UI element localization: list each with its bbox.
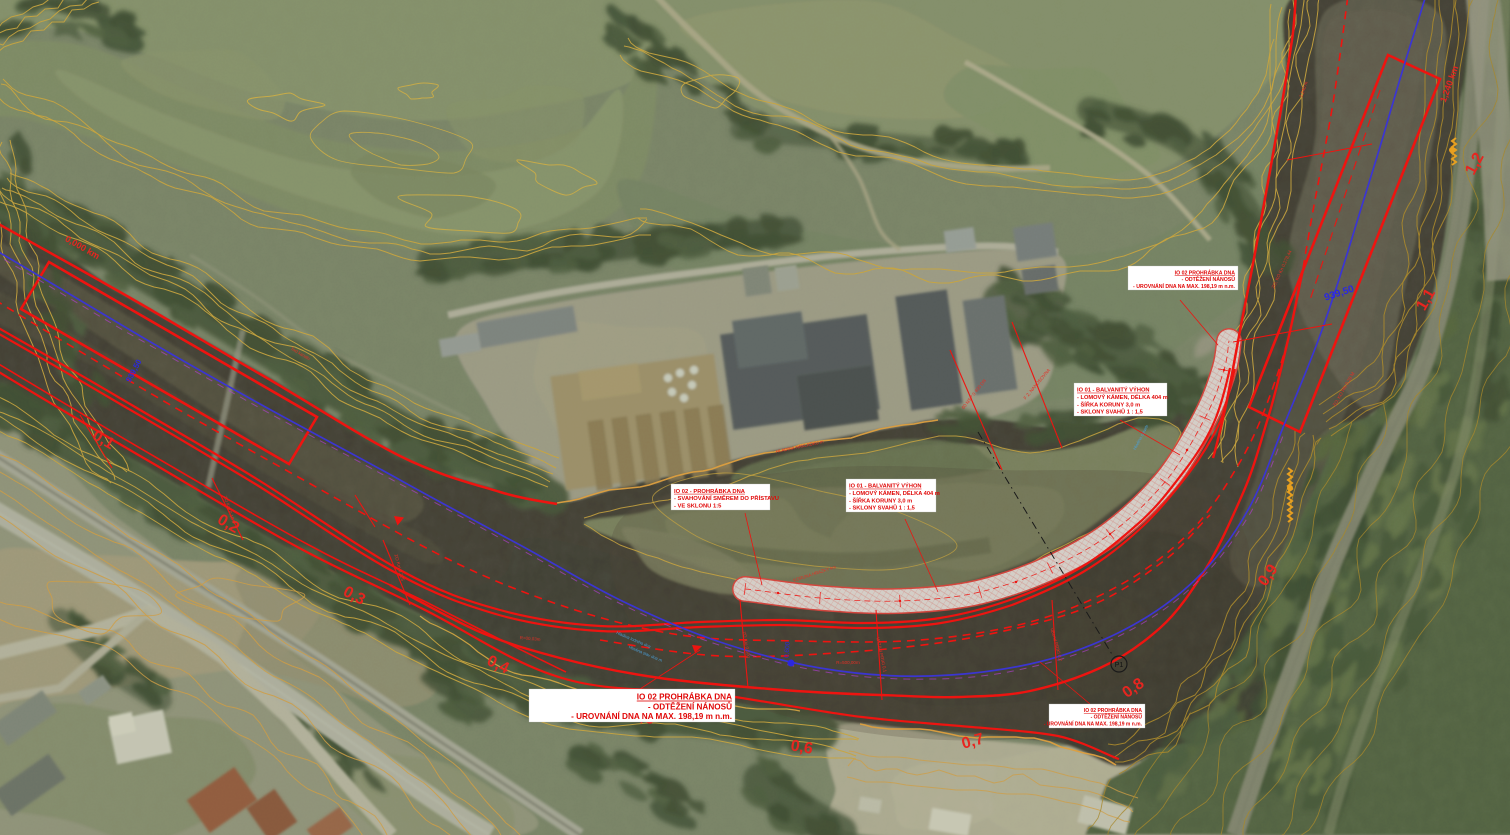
svg-text:- LOMOVÝ KÁMEN, DÉLKA 404 m: - LOMOVÝ KÁMEN, DÉLKA 404 m [849,489,940,497]
svg-text:- ODTĚŽENÍ NÁNOSŮ: - ODTĚŽENÍ NÁNOSŮ [648,700,732,711]
svg-text:R=500,00m: R=500,00m [836,660,860,665]
svg-text:- ODTĚŽENÍ NÁNOSŮ: - ODTĚŽENÍ NÁNOSŮ [1182,275,1236,283]
svg-text:0,600: 0,600 [783,641,791,658]
svg-text:IO 01 - BALVANITÝ VÝHON: IO 01 - BALVANITÝ VÝHON [849,483,921,490]
svg-text:- UROVNÁNÍ DNA NA MAX. 198,19: - UROVNÁNÍ DNA NA MAX. 198,19 m n.m. [1044,719,1143,727]
svg-text:- UROVNÁNÍ DNA NA MAX. 198,19: - UROVNÁNÍ DNA NA MAX. 198,19 m n.m. [1133,282,1235,290]
svg-text:IO 01 - BALVANITÝ VÝHON: IO 01 - BALVANITÝ VÝHON [1077,387,1149,394]
svg-text:- ŠÍŘKA KORUNY 3,0 m: - ŠÍŘKA KORUNY 3,0 m [849,496,912,504]
svg-text:- ODTĚŽENÍ NÁNOSŮ: - ODTĚŽENÍ NÁNOSŮ [1091,713,1143,721]
svg-text:IO 02 PROHRÁBKA DNA: IO 02 PROHRÁBKA DNA [1084,707,1143,714]
svg-text:IO 02 PROHRÁBKA DNA: IO 02 PROHRÁBKA DNA [1175,269,1236,276]
svg-text:- UROVNÁNÍ DNA NA MAX. 198,19: - UROVNÁNÍ DNA NA MAX. 198,19 m n.m. [571,711,732,721]
svg-text:- SKLONY SVAHŮ 1 : 1,5: - SKLONY SVAHŮ 1 : 1,5 [849,504,915,512]
svg-text:- LOMOVÝ KÁMEN, DÉLKA 404 m: - LOMOVÝ KÁMEN, DÉLKA 404 m [1077,393,1168,401]
svg-text:P1: P1 [1115,662,1124,669]
svg-text:IO 02 - PROHRÁBKA DNA: IO 02 - PROHRÁBKA DNA [674,488,746,495]
svg-text:- VE SKLONU 1:5: - VE SKLONU 1:5 [674,504,722,510]
svg-text:- SVAHOVÁNÍ SMĚREM DO PŘÍSTAVU: - SVAHOVÁNÍ SMĚREM DO PŘÍSTAVU [674,494,779,502]
svg-text:IO 02 PROHRÁBKA DNA: IO 02 PROHRÁBKA DNA [637,692,732,702]
svg-text:- ŠÍŘKA KORUNY 3,0 m: - ŠÍŘKA KORUNY 3,0 m [1077,400,1140,408]
svg-text:- SKLONY SVAHŮ 1 : 1,5: - SKLONY SVAHŮ 1 : 1,5 [1077,408,1143,416]
